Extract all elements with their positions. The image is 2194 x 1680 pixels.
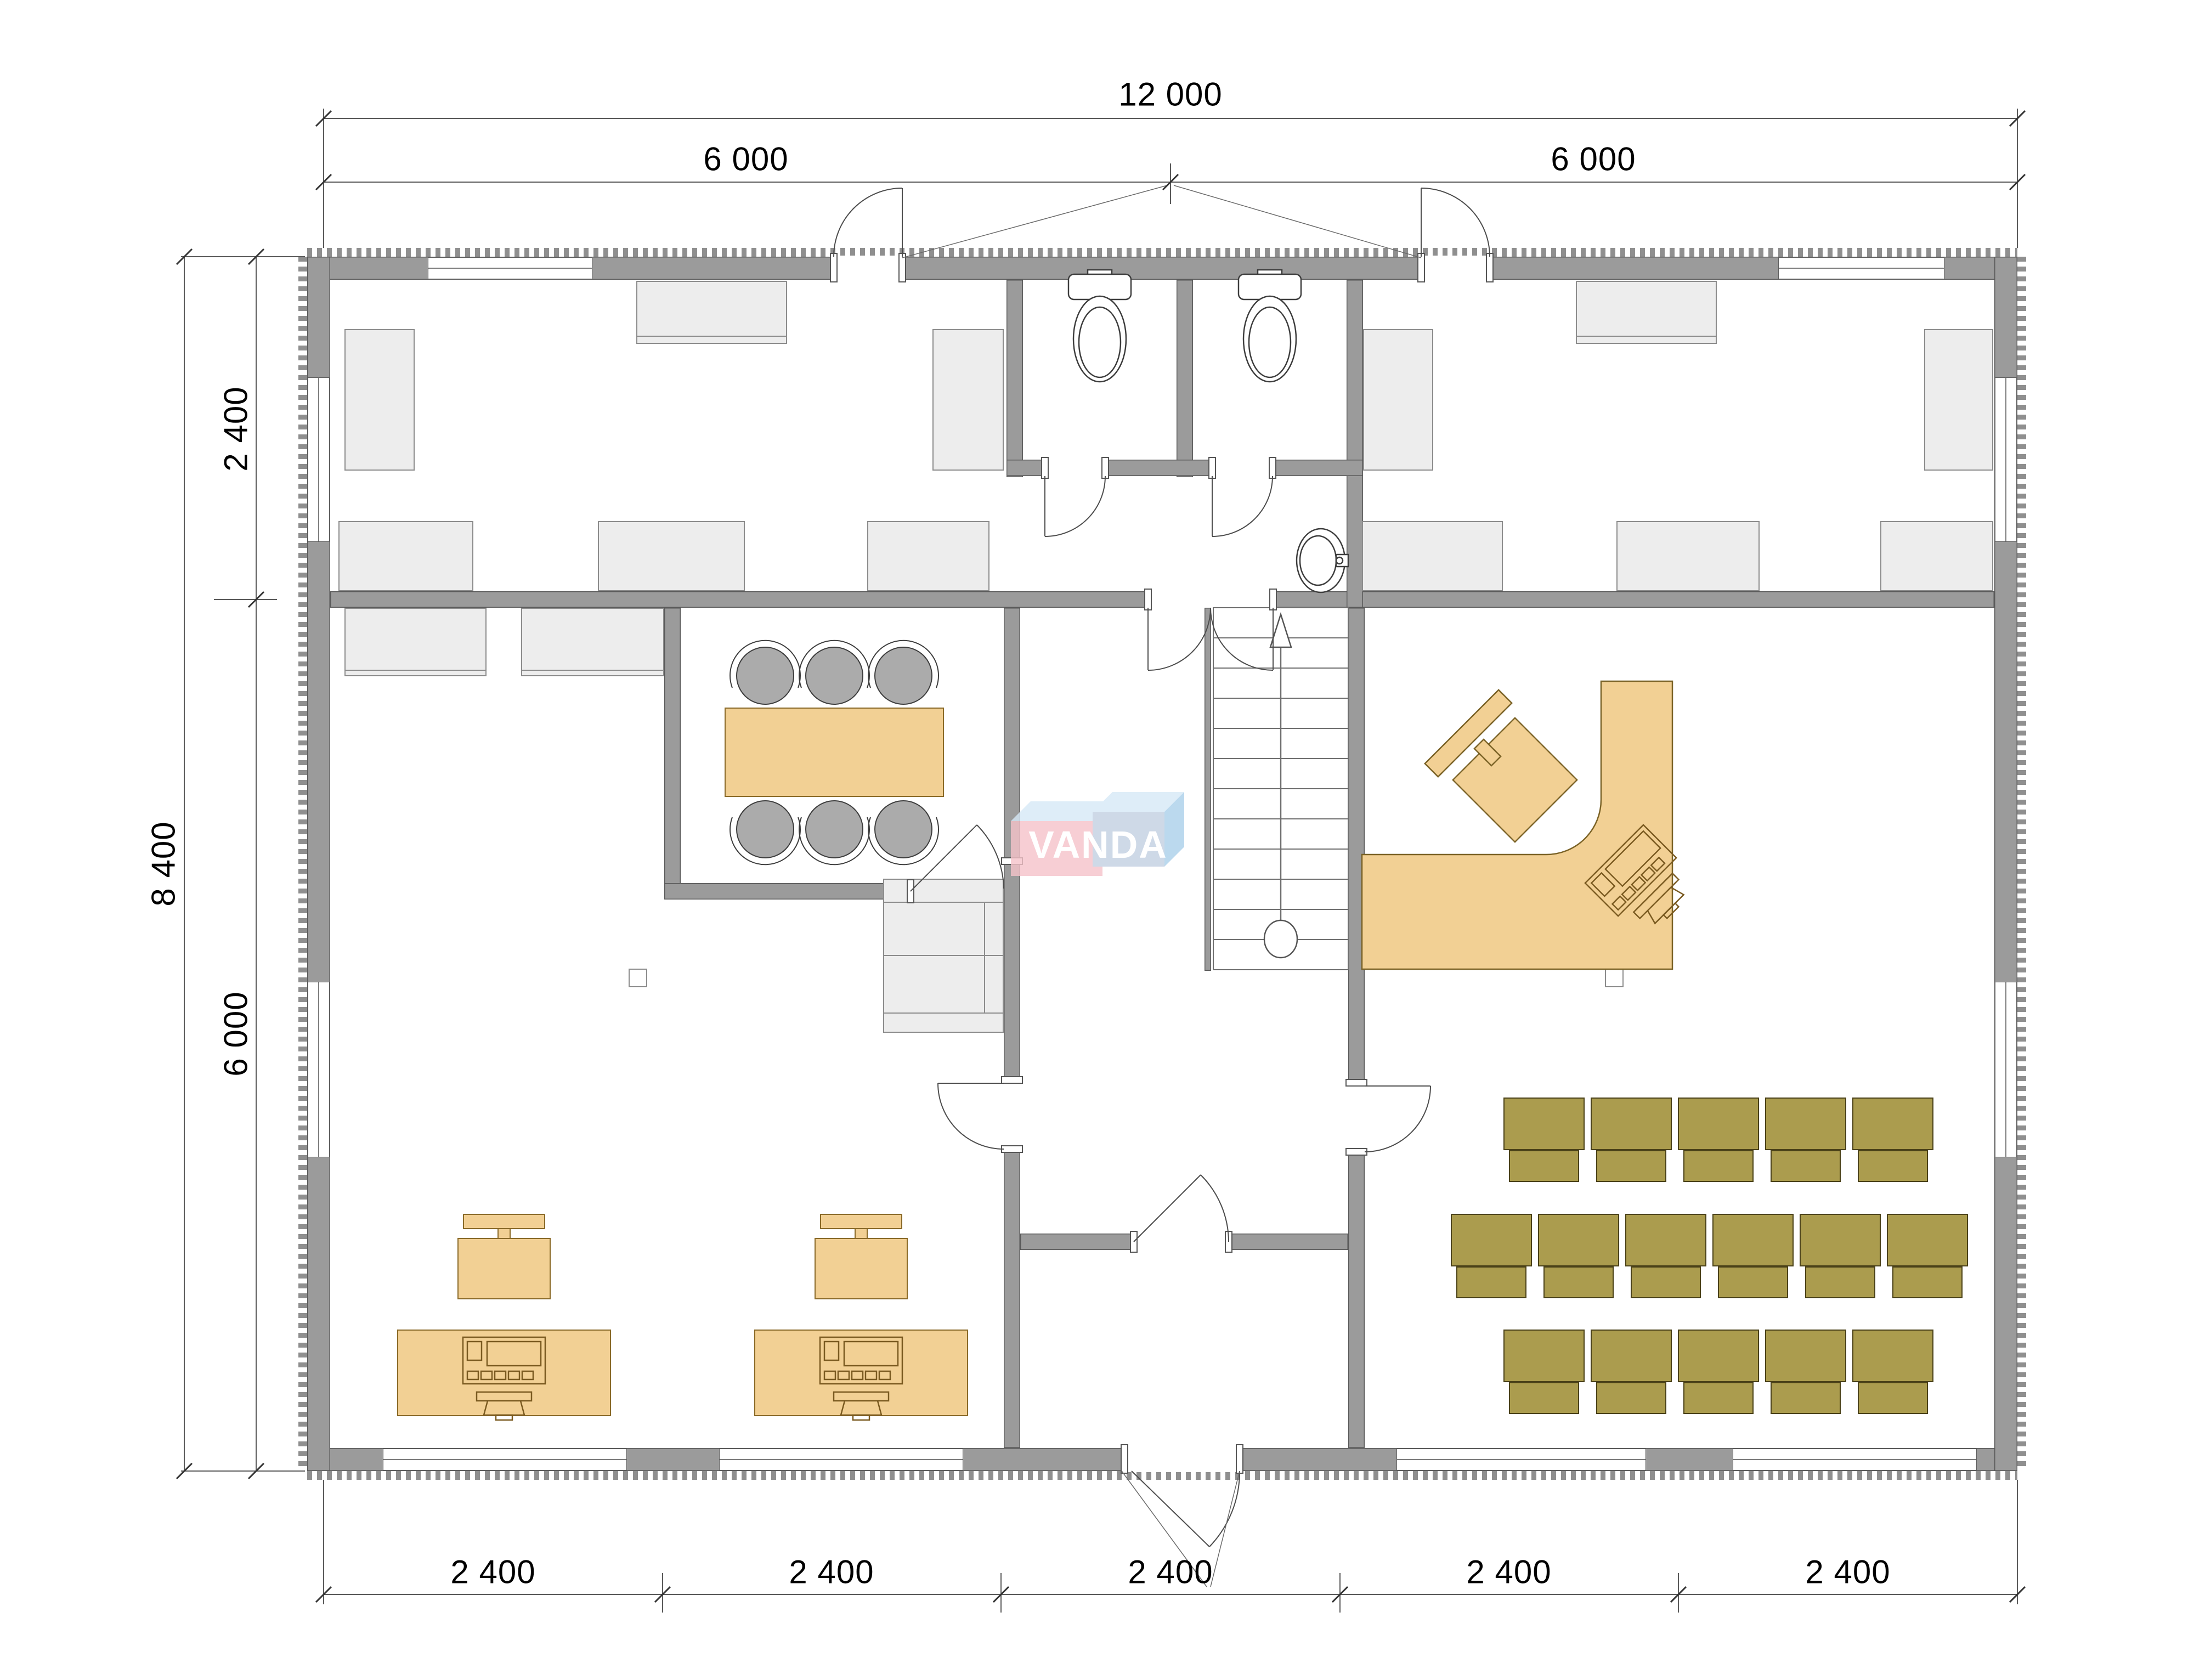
dim-bottom-4: 2 400	[1466, 1553, 1551, 1591]
dim-left-top: 2 400	[217, 386, 255, 471]
reception-desk	[1362, 681, 1702, 969]
dim-bottom-3: 2 400	[1128, 1553, 1213, 1591]
dim-left-total: 8 400	[145, 821, 183, 906]
meeting-chairs	[730, 641, 938, 865]
computer-icon-2	[820, 1337, 902, 1420]
dim-bottom-2: 2 400	[789, 1553, 874, 1591]
dim-bottom-5: 2 400	[1805, 1553, 1890, 1591]
sink-icon	[1297, 529, 1348, 592]
storage-cabinet-lines	[883, 902, 1004, 1013]
logo-text: VANDA	[1016, 823, 1180, 867]
stair-end-symbol	[1264, 920, 1297, 958]
staircase	[1213, 608, 1348, 970]
floor-plan: 12 000 6 000 6 000 8 400 2 400 6 000 2 4…	[0, 0, 2194, 1680]
toilet-icon-1	[1068, 270, 1131, 382]
reception-chair	[1425, 690, 1577, 842]
dim-top-right: 6 000	[1551, 140, 1636, 178]
computer-icon-1	[463, 1337, 545, 1420]
toilet-icon-2	[1239, 270, 1301, 382]
dim-top-left: 6 000	[703, 140, 788, 178]
dim-bottom-1: 2 400	[450, 1553, 535, 1591]
dim-top-total: 12 000	[1118, 76, 1223, 114]
dim-left-bottom: 6 000	[217, 991, 255, 1076]
